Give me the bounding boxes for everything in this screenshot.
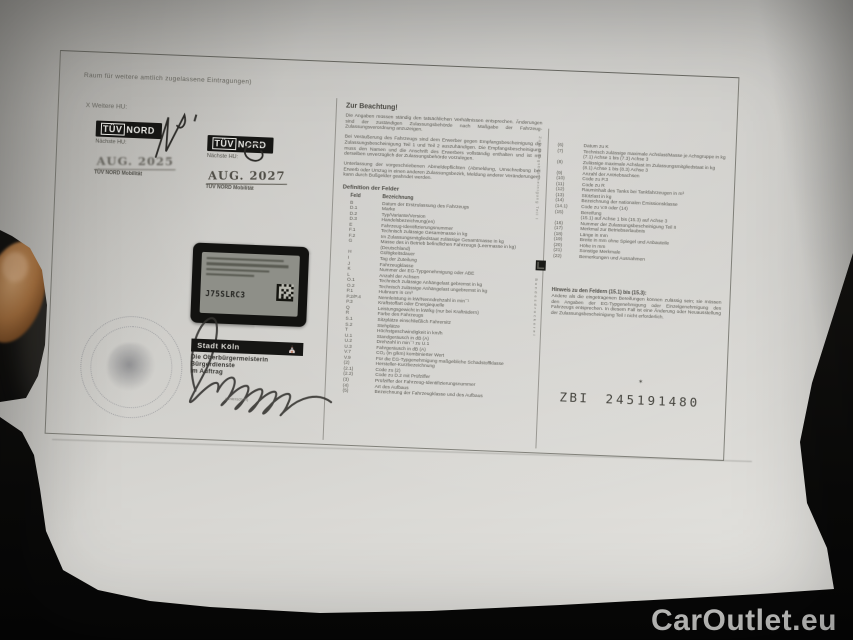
- sticker-code: J75SLRC3: [205, 289, 245, 300]
- document-frame: Raum für weitere amtlich zugelassene Ein…: [45, 50, 740, 461]
- tyre-note: Hinweis zu den Feldern (15.1) bis (15.3)…: [551, 287, 722, 323]
- registration-paper: Raum für weitere amtlich zugelassene Ein…: [0, 0, 853, 640]
- pen-scribble: [95, 610, 159, 628]
- illegible-line: [206, 268, 269, 273]
- illegible-line: [207, 262, 289, 267]
- field-desc-header: Bezeichnung: [382, 194, 413, 201]
- field-list-left: B Datum der Erstzulassung des Fahrzeugs …: [334, 200, 539, 402]
- document-serial: ZBI245191480: [559, 389, 700, 410]
- cathedral-icon: ⛪: [288, 345, 298, 353]
- serial-prefix: ZBI: [559, 389, 590, 405]
- next-hu-label: X Weitere HU:: [86, 102, 128, 111]
- notice-paragraph: Bei Veräußerung des Fahrzeugs sind dem E…: [344, 135, 542, 166]
- city-stamp: Stadt Köln ⛪ Die Oberbürgermeisterin Bür…: [190, 339, 303, 379]
- pen-mark-n: [153, 111, 193, 164]
- photo-scene: Raum für weitere amtlich zugelassene Ein…: [0, 0, 853, 640]
- field-code-header: Feld: [342, 192, 382, 200]
- data-matrix-icon: [276, 284, 294, 302]
- serial-star-mark: ✶: [638, 378, 643, 385]
- illegible-line: [206, 273, 254, 277]
- entries-note: Raum für weitere amtlich zugelassene Ein…: [84, 72, 252, 86]
- pen-mark-tick: [193, 114, 197, 121]
- caroutlet-watermark: CarOutlet.eu: [651, 604, 837, 638]
- illegible-line: [207, 257, 284, 262]
- tuv-footer: TÜV NORD Mobilität: [94, 169, 190, 179]
- field-code: (22): [553, 254, 579, 261]
- notice-column: Zur Beachtung! Die Angaben müssen ständi…: [334, 103, 543, 402]
- serial-number: 245191480: [605, 391, 700, 410]
- hu-date-stamp: AUG. 2027: [206, 168, 287, 184]
- tuv-stickers: TÜVNORD Nächste HU: AUG. 2025 TÜV NORD M…: [94, 119, 305, 194]
- small-data-matrix-icon: [536, 260, 546, 270]
- finger-nail: [2, 252, 28, 282]
- tuv-nord-logo: TÜVNORD: [96, 121, 163, 140]
- vertical-printer-label: Bundesdruckerei: [532, 278, 539, 337]
- pen-mark-curl: [238, 140, 269, 167]
- tuv-footer: TÜV NORD Mobilität: [206, 184, 302, 194]
- notice-paragraph: Unterlassung der vorgeschriebenen Abmeld…: [343, 161, 541, 186]
- field-list-right: (6) Datum zu K (7) Technisch zulässige m…: [553, 143, 730, 266]
- signature-caption: (Unterschrift): [225, 396, 248, 402]
- city-stamp-name: Stadt Köln: [197, 341, 240, 352]
